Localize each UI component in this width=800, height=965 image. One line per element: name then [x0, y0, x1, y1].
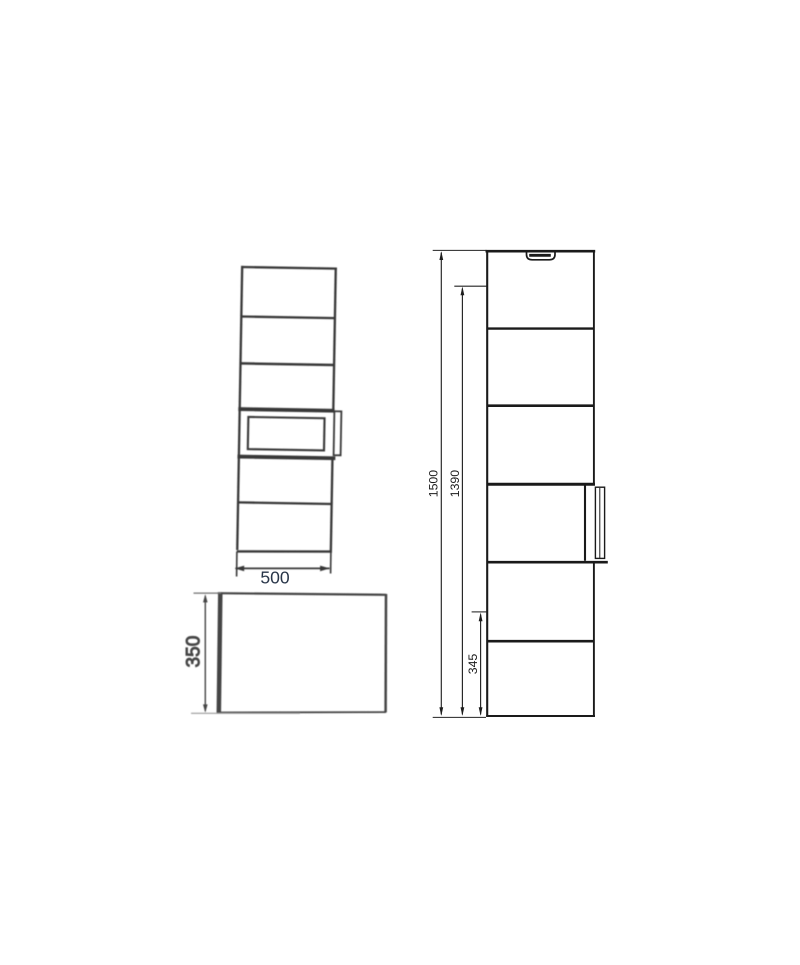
- svg-text:1500: 1500: [427, 470, 441, 498]
- svg-text:350: 350: [184, 636, 205, 668]
- svg-text:500: 500: [260, 567, 290, 587]
- svg-text:345: 345: [466, 654, 480, 675]
- svg-text:1390: 1390: [448, 470, 462, 498]
